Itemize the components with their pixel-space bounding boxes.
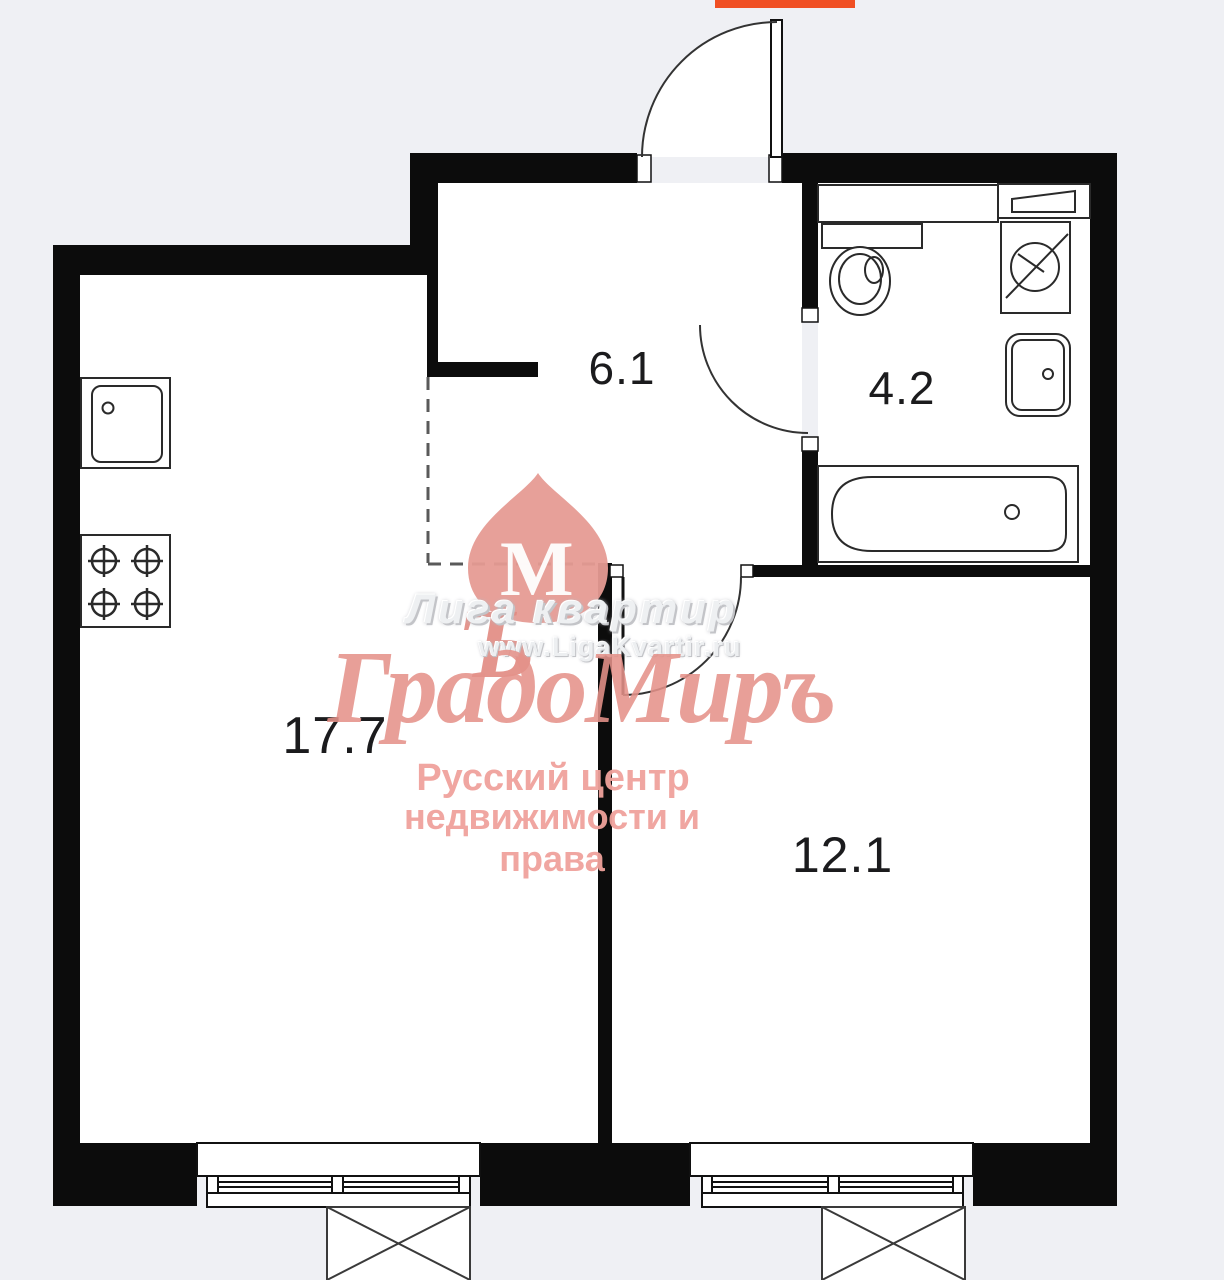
plan-symbols	[0, 0, 1224, 1280]
window-icon	[690, 1143, 973, 1207]
crossed-box-icon	[822, 1207, 965, 1280]
bedroom-door	[623, 577, 741, 695]
room-area-label-hallway: 6.1	[560, 341, 684, 395]
door-leaf	[771, 20, 782, 157]
washbasin-icon	[1006, 334, 1070, 416]
stove-icon	[81, 535, 170, 627]
kitchen-sink-icon	[81, 378, 170, 468]
floor-plan: 6.1 4.2 17.7 12.1 М Ъ Лига квартир www.L…	[0, 0, 1224, 1280]
door-swing-arc-icon	[700, 325, 808, 433]
bathtub-icon	[818, 466, 1078, 562]
washing-machine-icon	[1001, 222, 1070, 313]
room-area-label-kitchen-living: 17.7	[260, 706, 410, 766]
zone-boundary-dashed-line	[428, 377, 598, 564]
room-area-label-bathroom: 4.2	[840, 361, 964, 415]
top-accent-line	[715, 0, 855, 8]
bathroom-door	[700, 325, 808, 433]
window-icon	[197, 1143, 480, 1207]
shelf-icon	[818, 184, 1090, 222]
entrance-door	[642, 20, 782, 157]
door-swing-arc-icon	[642, 22, 777, 157]
toilet-icon	[822, 224, 922, 315]
room-area-label-bedroom: 12.1	[770, 826, 915, 884]
crossed-box-icon	[327, 1207, 470, 1280]
door-swing-arc-icon	[623, 577, 741, 695]
